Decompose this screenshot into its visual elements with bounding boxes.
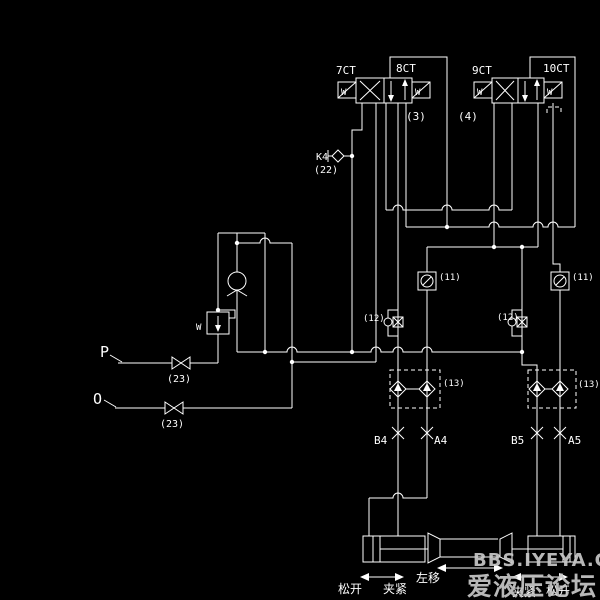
left-motion-arrowhead-left [360,573,369,581]
o-shutoff-number: (23) [160,419,184,430]
junction-dot [290,360,294,364]
port-b4-label: B4 [374,434,388,447]
valve3-left-tag: 7CT [336,64,356,77]
component-11-left: (11) [418,247,461,498]
junction-dot [235,241,239,245]
valve4-arrowhead-up [534,79,540,86]
valve4-port-line-4 [553,103,560,272]
valve3-left-spring-w: W [341,88,347,98]
junction-dot [520,245,524,249]
relief-valve-arrowhead [215,325,221,332]
bus-line-227 [406,222,575,227]
relief-spring-w: W [196,323,202,333]
left-clamp-label: 夹紧 [383,582,407,596]
right-main-line [522,247,537,536]
move-left-label: 左移 [416,570,440,585]
junction-dot [492,245,496,249]
valve4-cross-arrows [496,81,514,100]
k4-coupling-diamond [328,150,352,162]
comp11R-number: (11) [572,273,594,283]
junction-dot [350,350,354,354]
left-cylinder [363,536,428,562]
comp11R-tick [556,277,564,285]
valve4-right-tag: 10CT [543,62,570,75]
relief-pilot-dot [216,308,220,312]
comp13R-number: (13) [578,380,600,390]
valve3-right-spring-w: W [415,88,421,98]
junction-dots [235,225,524,364]
component-13-right: (13) [528,370,600,408]
o-label: O [93,390,102,408]
valve3-right-tag: 8CT [396,62,416,75]
test-point-k4: K4 (22) [314,150,354,176]
relief-valve-pilot-loop [218,310,235,318]
valve3-parallel-arrows [391,81,405,100]
valve3-arrowhead-up [402,79,408,86]
valve4-position-parallel-box [518,78,544,103]
supply-p: P (23) [100,343,218,385]
bus-line-210 [386,205,512,210]
valve-3: 7CT 8CT W W (3) [336,62,430,123]
junction-dot [263,350,267,354]
check-valve [227,233,247,352]
comp12L-number: (12) [363,314,385,324]
port-a4-label: A4 [434,434,448,447]
watermark-forum: 爱液压论坛 [467,572,597,600]
hydraulic-schematic-canvas: 7CT 8CT W W (3) 9CT 10CT W W (4) [0,0,600,600]
relief-valve: W [196,308,235,363]
left-cylinder-piston [373,536,380,562]
valve4-left-spring-w: W [477,88,483,98]
valve4-arrowhead-down [522,95,528,102]
o-arrow-tick [104,400,116,407]
p-arrow-tick [110,355,122,362]
port-b5-label: B5 [511,434,524,447]
comp13L-number: (13) [443,379,465,389]
k4-number: (22) [314,165,338,176]
p-label: P [100,343,109,361]
comp12R-number: (12) [497,313,519,323]
check-valve-ball [228,272,246,290]
schematic-drawing: 7CT 8CT W W (3) 9CT 10CT W W (4) [0,0,600,600]
supply-o: O (23) [93,390,292,430]
valve4-detent-bracket [547,107,561,113]
junction-dot [445,225,449,229]
valve3-arrowhead-down [388,95,394,102]
junction-dot [520,350,524,354]
collector-line-352 [237,347,522,352]
p-shutoff-number: (23) [167,374,191,385]
comp11L-number: (11) [439,273,461,283]
workpiece-left-jaw [428,533,440,563]
p-shutoff-valve [172,357,190,369]
k4-label: K4 [316,152,328,163]
o-shutoff-valve [165,402,183,414]
valve3-position-parallel-box [384,78,412,103]
valve3-cross-arrows [360,81,380,100]
watermark: BBS.IYEYA.CN 爱液压论坛 [467,550,600,600]
valve3-port-k4-line [352,103,362,352]
valve4-left-tag: 9CT [472,64,492,77]
valve4-right-spring-w: W [547,88,553,98]
port-a5-label: A5 [568,434,581,447]
watermark-site: BBS.IYEYA.CN [473,550,600,571]
comp11L-tick [423,277,431,285]
valve3-number: (3) [406,110,426,123]
valve4-number: (4) [458,110,478,123]
component-12-left: (12) [363,310,403,336]
component-11-right: (11) [551,272,594,536]
left-release-label: 松开 [338,582,362,596]
left-motion-arrowhead-right [395,573,404,581]
port-couplings: B4 A4 B5 A5 [374,427,581,447]
comp12L-gauge-circle [384,318,392,326]
k4-junction-dot [350,154,354,158]
